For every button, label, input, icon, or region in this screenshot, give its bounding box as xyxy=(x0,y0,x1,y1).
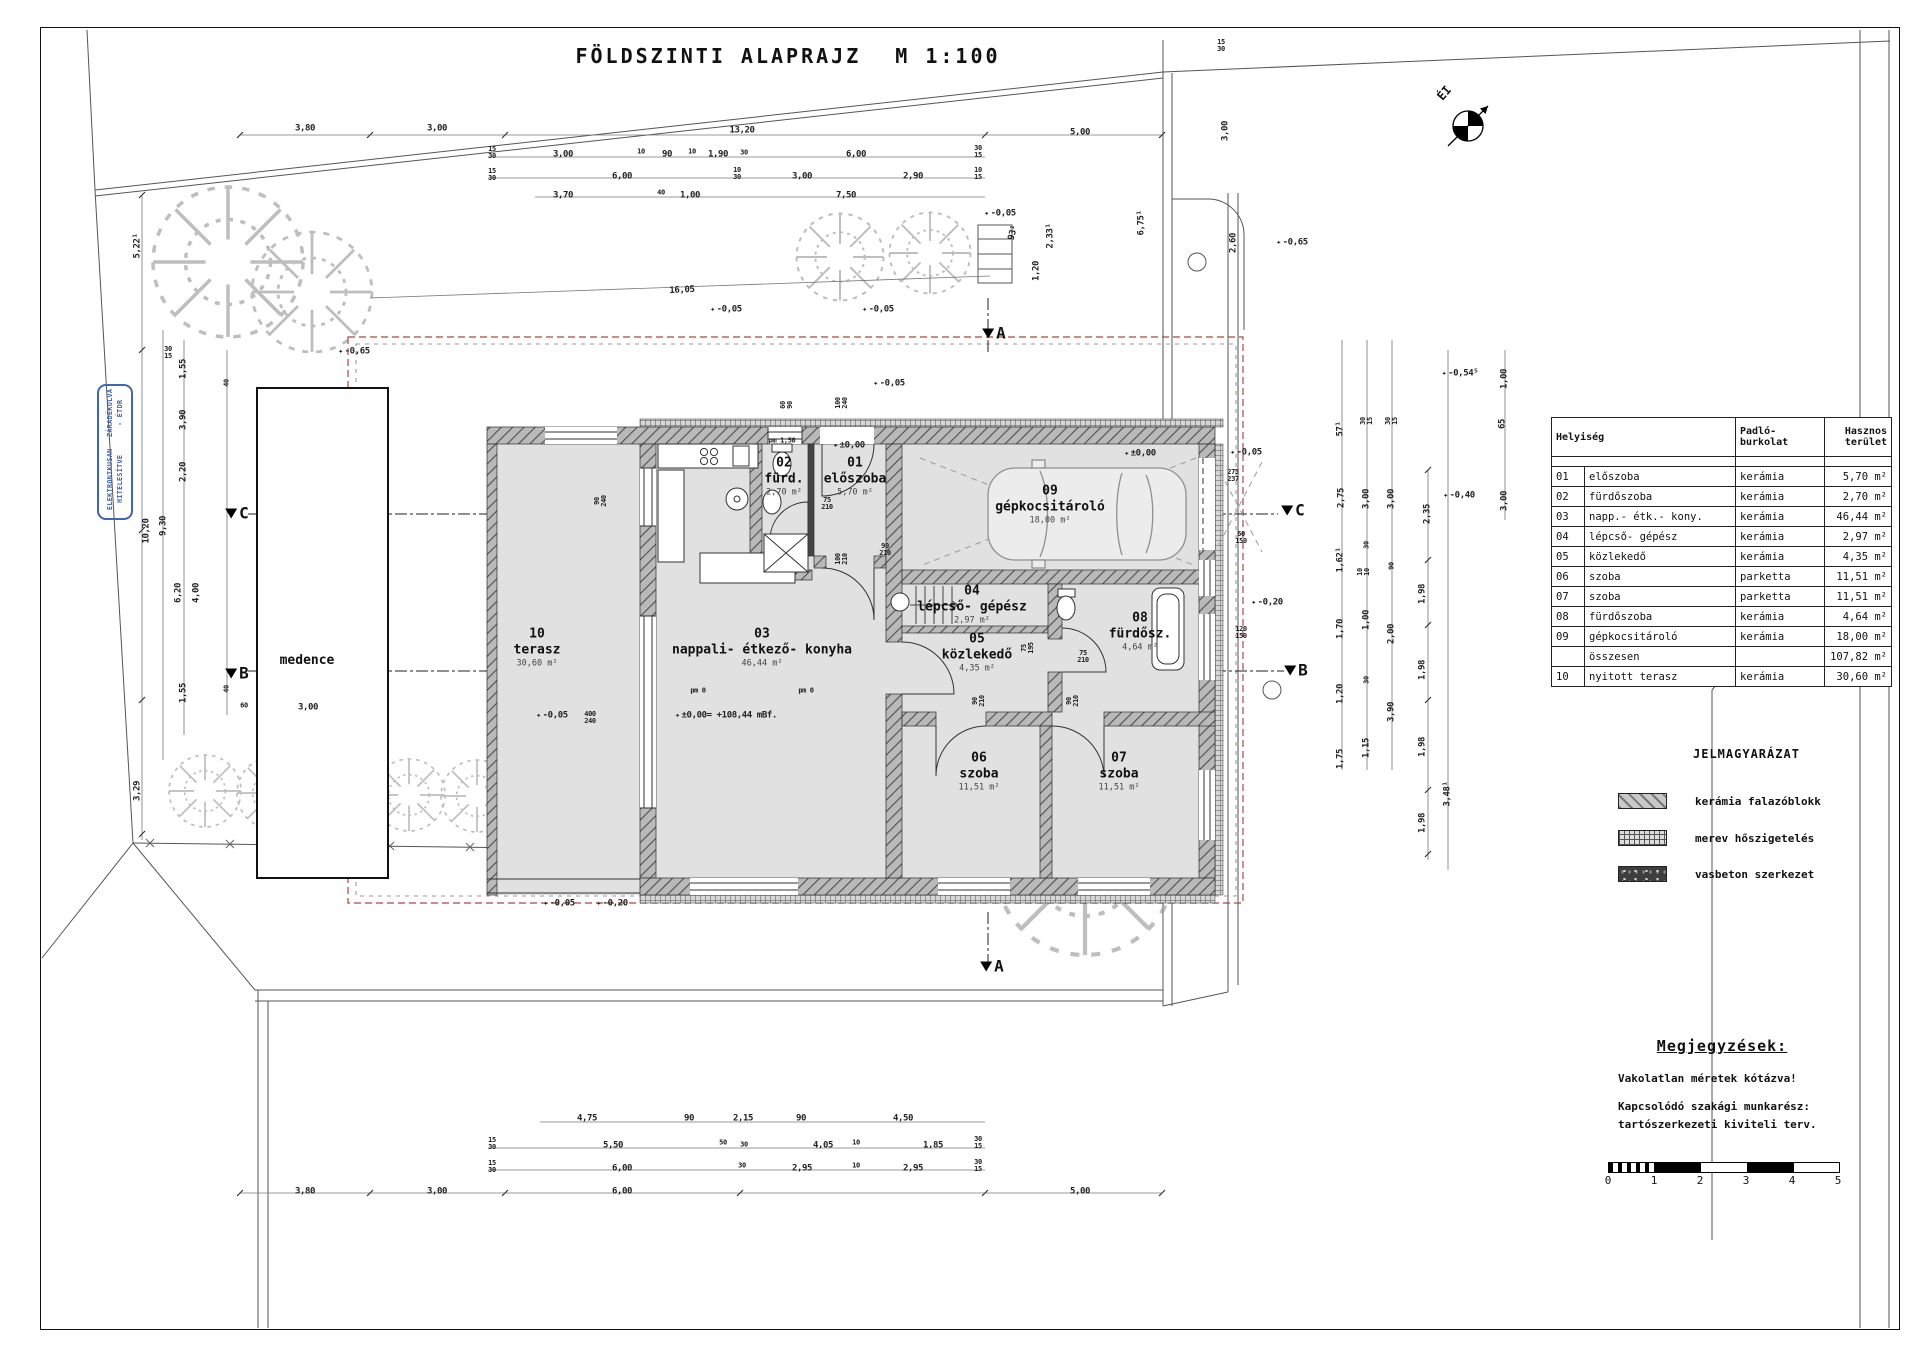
room-no-cell: 07 xyxy=(1552,587,1585,607)
room-no-cell xyxy=(1552,647,1585,667)
room-name-cell: gépkocsitároló xyxy=(1585,627,1736,647)
room-floor-cell: kerámia xyxy=(1736,487,1825,507)
room-no-cell: 03 xyxy=(1552,507,1585,527)
table-row: 03 napp.- étk.- kony. kerámia 46,44 m² xyxy=(1552,507,1892,527)
room-no-cell: 09 xyxy=(1552,627,1585,647)
room-area-cell: 2,97 m² xyxy=(1825,527,1892,547)
graphic-scale-bar: 0 1 2 3 4 5 xyxy=(1608,1162,1838,1188)
room-area-cell: 107,82 m² xyxy=(1825,647,1892,667)
room-no-cell: 05 xyxy=(1552,547,1585,567)
table-row: 06 szoba parketta 11,51 m² xyxy=(1552,567,1892,587)
scale-segment xyxy=(1794,1163,1839,1172)
room-name-cell: összesen xyxy=(1585,647,1736,667)
house-plan xyxy=(257,388,1262,903)
scale-segment xyxy=(1748,1163,1794,1172)
drawing-title: FÖLDSZINTI ALAPRAJZ xyxy=(575,44,861,68)
room-floor-cell: kerámia xyxy=(1736,607,1825,627)
stamp-line1: ELEKTRONIKUSAN HITELESÍTVE xyxy=(105,440,125,518)
pool-outline xyxy=(257,388,388,878)
etdr-stamp: ELEKTRONIKUSAN HITELESÍTVE ZÁRADÉKOLVA -… xyxy=(97,384,133,520)
room-area-cell: 46,44 m² xyxy=(1825,507,1892,527)
room-name-cell: közlekedő xyxy=(1585,547,1736,567)
table-row: 01 előszoba kerámia 5,70 m² xyxy=(1552,467,1892,487)
legend-item-ceramic: kerámia falazóblokk xyxy=(1618,793,1821,809)
room-area-cell: 4,35 m² xyxy=(1825,547,1892,567)
scale-label-3: 3 xyxy=(1743,1174,1750,1187)
stamp-line2: ZÁRADÉKOLVA - ÉTDR xyxy=(105,386,125,440)
room-area-cell: 4,64 m² xyxy=(1825,607,1892,627)
room-name-cell: lépcső- gépész xyxy=(1585,527,1736,547)
room-name-cell: nyitott terasz xyxy=(1585,667,1736,687)
room-no-cell: 01 xyxy=(1552,467,1585,487)
room-area-cell: 5,70 m² xyxy=(1825,467,1892,487)
room-name-cell: szoba xyxy=(1585,587,1736,607)
room-no-cell: 10 xyxy=(1552,667,1585,687)
page-title: FÖLDSZINTI ALAPRAJZ M 1:100 xyxy=(575,44,1000,68)
room-name-cell: előszoba xyxy=(1585,467,1736,487)
table-header-area: Hasznos terület xyxy=(1825,418,1892,457)
room-floor-cell: kerámia xyxy=(1736,667,1825,687)
drawing-scale: M 1:100 xyxy=(895,44,1000,68)
note-line: Kapcsolódó szakági munkarész: xyxy=(1618,1100,1810,1113)
scale-segment xyxy=(1701,1163,1747,1172)
room-floor-cell: kerámia xyxy=(1736,527,1825,547)
room-name-cell: fürdőszoba xyxy=(1585,487,1736,507)
scale-segment xyxy=(1609,1163,1655,1172)
table-row: 02 fürdőszoba kerámia 2,70 m² xyxy=(1552,487,1892,507)
room-name-cell: napp.- étk.- kony. xyxy=(1585,507,1736,527)
table-row: összesen 107,82 m² xyxy=(1552,647,1892,667)
room-floor-cell: kerámia xyxy=(1736,467,1825,487)
table-row: 04 lépcső- gépész kerámia 2,97 m² xyxy=(1552,527,1892,547)
note-line: tartószerkezeti kiviteli terv. xyxy=(1618,1118,1817,1131)
scale-segment xyxy=(1655,1163,1701,1172)
legend-title: JELMAGYARÁZAT xyxy=(1693,747,1800,761)
ceramic-hatch-swatch-icon xyxy=(1618,793,1667,809)
room-floor-cell: kerámia xyxy=(1736,547,1825,567)
room-area-cell: 30,60 m² xyxy=(1825,667,1892,687)
insulation-grid-swatch-icon xyxy=(1618,830,1667,846)
scale-label-0: 0 xyxy=(1605,1174,1612,1187)
scale-bar-segments xyxy=(1608,1162,1840,1173)
room-area-cell: 11,51 m² xyxy=(1825,587,1892,607)
car-top-view xyxy=(988,460,1186,568)
table-row: 08 fürdőszoba kerámia 4,64 m² xyxy=(1552,607,1892,627)
room-area-cell: 18,00 m² xyxy=(1825,627,1892,647)
room-schedule-table: Helyiség Padló- burkolat Hasznos terület… xyxy=(1551,417,1892,687)
room-no-cell: 04 xyxy=(1552,527,1585,547)
north-compass-icon xyxy=(1448,106,1488,146)
table-header-room: Helyiség xyxy=(1552,418,1736,457)
note-line: Vakolatlan méretek kótázva! xyxy=(1618,1072,1797,1085)
room-floor-cell: parketta xyxy=(1736,587,1825,607)
concrete-swatch-icon xyxy=(1618,866,1667,882)
legend-item-concrete: vasbeton szerkezet xyxy=(1618,866,1814,882)
room-name-cell: fürdőszoba xyxy=(1585,607,1736,627)
room-floor-cell: parketta xyxy=(1736,567,1825,587)
table-row: 10 nyitott terasz kerámia 30,60 m² xyxy=(1552,667,1892,687)
scale-label-5: 5 xyxy=(1835,1174,1842,1187)
room-area-cell: 11,51 m² xyxy=(1825,567,1892,587)
scale-label-4: 4 xyxy=(1789,1174,1796,1187)
room-name-cell: szoba xyxy=(1585,567,1736,587)
room-no-cell: 02 xyxy=(1552,487,1585,507)
room-no-cell: 06 xyxy=(1552,567,1585,587)
room-floor-cell: kerámia xyxy=(1736,507,1825,527)
scale-label-1: 1 xyxy=(1651,1174,1658,1187)
table-header-floor: Padló- burkolat xyxy=(1736,418,1825,457)
room-floor-cell xyxy=(1736,647,1825,667)
table-row: 05 közlekedő kerámia 4,35 m² xyxy=(1552,547,1892,567)
legend-item-insulation: merev hőszigetelés xyxy=(1618,830,1814,846)
room-no-cell: 08 xyxy=(1552,607,1585,627)
table-row: 07 szoba parketta 11,51 m² xyxy=(1552,587,1892,607)
room-floor-cell: kerámia xyxy=(1736,627,1825,647)
scale-label-2: 2 xyxy=(1697,1174,1704,1187)
table-row: 09 gépkocsitároló kerámia 18,00 m² xyxy=(1552,627,1892,647)
notes-title: Megjegyzések: xyxy=(1657,1037,1787,1055)
room-area-cell: 2,70 m² xyxy=(1825,487,1892,507)
drawing-sheet: FÖLDSZINTI ALAPRAJZ M 1:100 ELEKTRONIKUS… xyxy=(0,0,1920,1357)
